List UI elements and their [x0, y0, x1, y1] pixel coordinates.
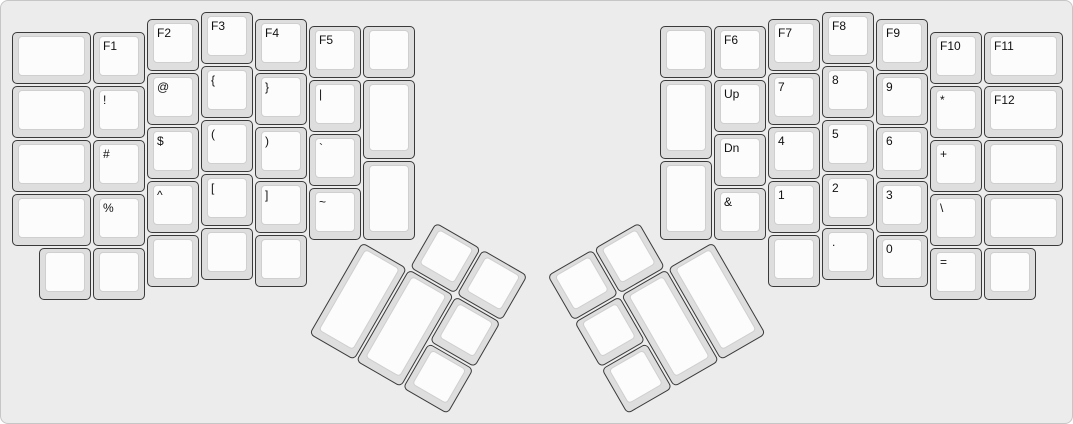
- keyboard-board: F1!#%F2@$^F3{([F4})]F5|`~F6UpDn&F7741F88…: [0, 0, 1073, 424]
- keycap-top-surface: [601, 229, 656, 284]
- keycap-top-surface: [554, 256, 609, 311]
